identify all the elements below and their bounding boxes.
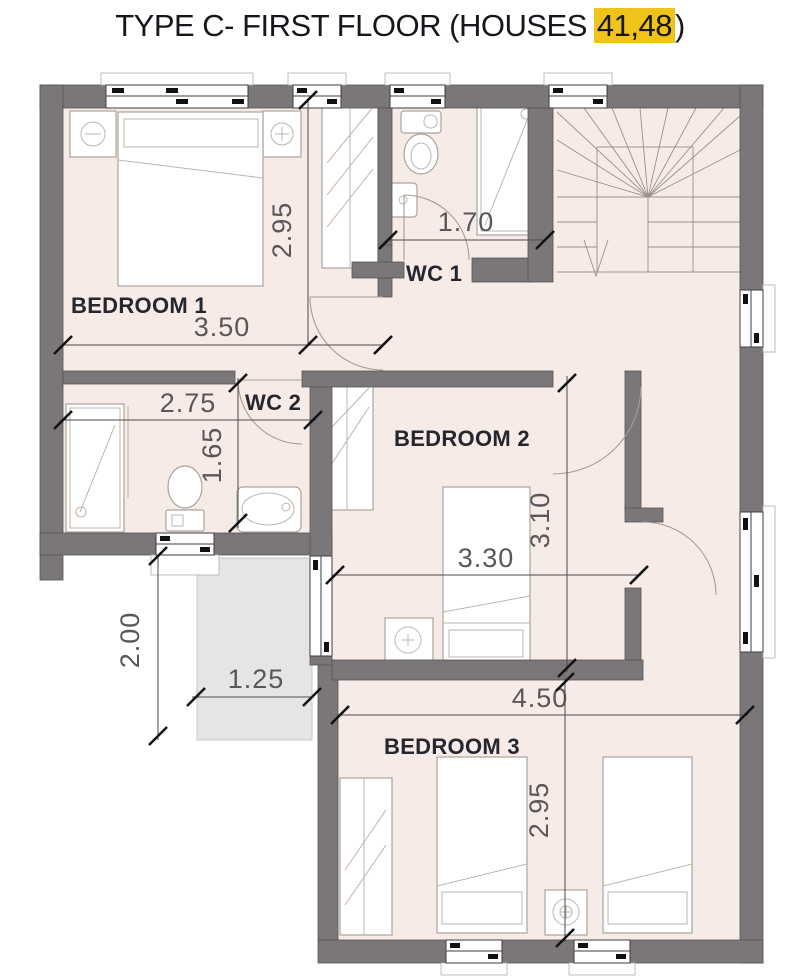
dim-value: 3.30 xyxy=(458,543,515,573)
bedroom-1-label: BEDROOM 1 xyxy=(71,293,207,318)
wardrobe xyxy=(322,105,378,268)
wall-bedroom2-north xyxy=(302,371,553,387)
nightstand-right xyxy=(263,111,301,157)
wall-bedroom3-south xyxy=(318,940,763,963)
single-bed-right xyxy=(603,757,692,933)
dim-value: 3.10 xyxy=(525,492,555,549)
wall-wc1-east xyxy=(528,108,553,282)
dim-value: 2.95 xyxy=(524,782,554,839)
window-sill xyxy=(288,73,346,85)
window-wc1 xyxy=(390,85,445,108)
terrace-area xyxy=(197,558,312,740)
wall-wc1-west xyxy=(378,108,392,245)
window-sill xyxy=(763,285,775,352)
shower xyxy=(66,404,128,532)
dim-value: 1.70 xyxy=(438,207,495,237)
bedroom-3-label: BEDROOM 3 xyxy=(384,734,520,759)
nightstand xyxy=(545,890,587,935)
wc-2-label: WC 2 xyxy=(245,390,301,415)
window-sill xyxy=(151,555,219,575)
window-sill xyxy=(569,963,635,975)
dim-value: 2.00 xyxy=(115,612,145,669)
window-corridor-right xyxy=(740,512,763,652)
window-bedroom1 xyxy=(106,85,248,108)
window-sill xyxy=(101,73,253,85)
dim-value: 2.75 xyxy=(160,388,217,418)
floor-plan-page: TYPE C- FIRST FLOOR (HOUSES41,48) xyxy=(0,0,800,979)
dim-value: 2.95 xyxy=(267,202,297,259)
window-sill xyxy=(441,963,507,975)
wardrobe xyxy=(340,778,392,935)
window-bedroom1-right xyxy=(293,85,341,108)
window-stairs-right xyxy=(740,290,763,347)
dim-value: 1.65 xyxy=(197,427,227,484)
double-bed xyxy=(118,112,263,286)
window-bedroom3-left xyxy=(446,940,502,963)
nightstand-left xyxy=(70,111,116,157)
wall-bedroom2-east-upper xyxy=(625,371,641,511)
wall-wc1-south xyxy=(472,258,532,282)
window-wc2 xyxy=(156,533,214,555)
wall-bedroom2-east-lower xyxy=(625,588,641,665)
window-bedroom2-terrace xyxy=(310,556,332,656)
nightstand xyxy=(385,618,433,663)
single-bed-left xyxy=(437,757,527,933)
wc-1-label: WC 1 xyxy=(406,261,462,286)
wall-corridor-stub xyxy=(625,508,663,522)
washbasin xyxy=(237,487,301,532)
bedroom-2-label: BEDROOM 2 xyxy=(394,426,530,451)
wall-bedroom3-west xyxy=(318,663,338,940)
floor-plan-drawing: 3.50 2.95 1.70 2.75 xyxy=(0,0,800,979)
window-sill xyxy=(544,73,612,85)
window-sill xyxy=(385,73,450,85)
window-bedroom3-right xyxy=(574,940,630,963)
wall-bedroom2-bedroom3 xyxy=(332,660,643,680)
window-stairs xyxy=(549,85,607,108)
toilet xyxy=(401,111,441,174)
wall-exterior-left xyxy=(40,85,63,580)
dim-value: 1.25 xyxy=(228,664,285,694)
wall-wc2-north xyxy=(63,371,235,384)
window-sill xyxy=(763,506,775,658)
washbasin xyxy=(389,183,417,217)
wall-hall-pier-horizontal xyxy=(352,262,404,278)
